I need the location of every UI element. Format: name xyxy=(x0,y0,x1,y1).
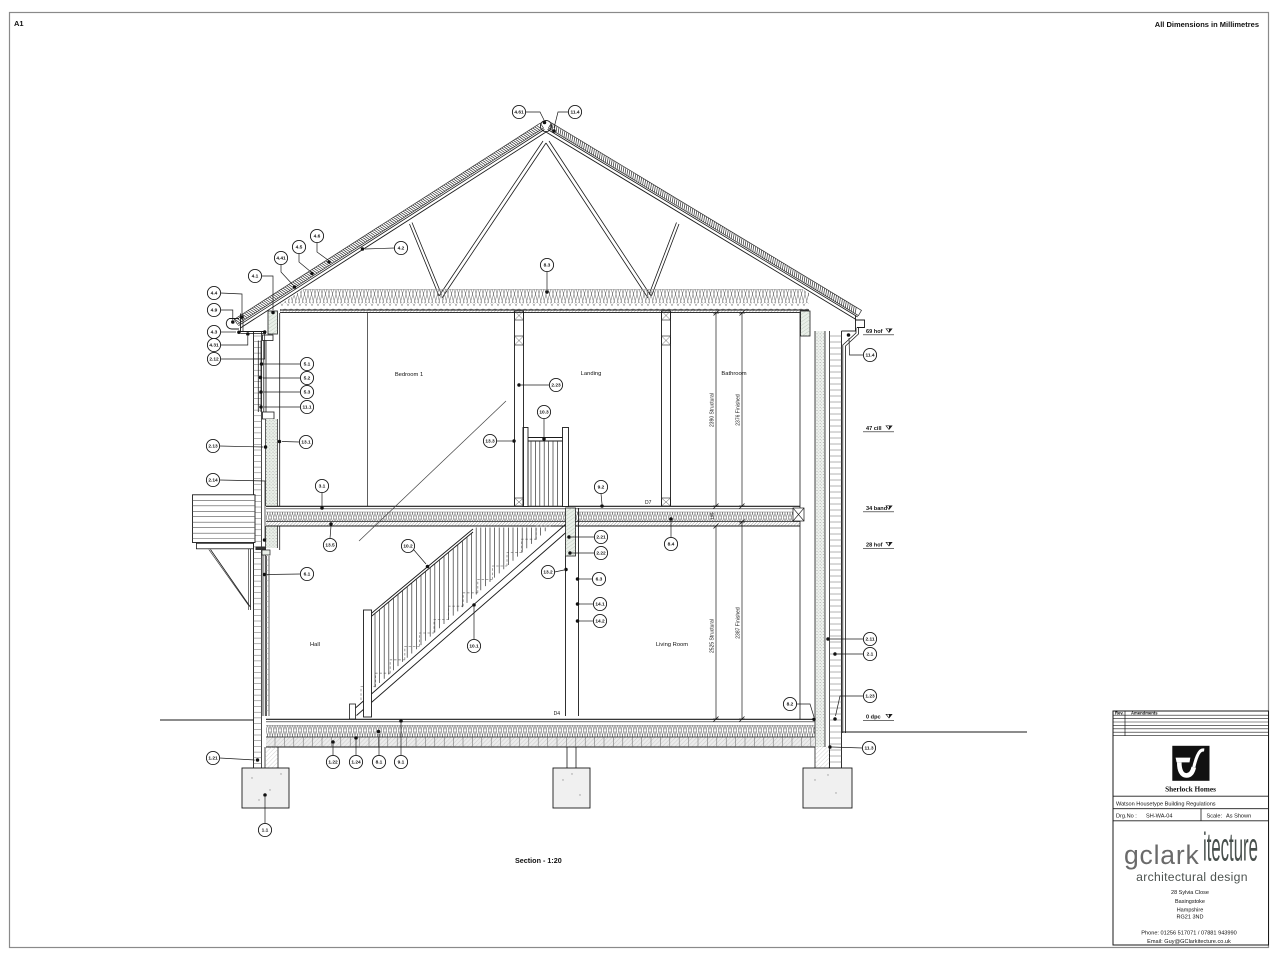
svg-text:D7: D7 xyxy=(645,500,652,506)
svg-text:Watson Housetype Building Regu: Watson Housetype Building Regulations xyxy=(1116,802,1216,808)
svg-text:All Dimensions in Millimetres: All Dimensions in Millimetres xyxy=(1155,20,1259,29)
svg-text:architectural design: architectural design xyxy=(1136,870,1248,884)
svg-text:D4: D4 xyxy=(554,711,561,717)
svg-text:4.2: 4.2 xyxy=(398,246,405,252)
svg-text:Living Room: Living Room xyxy=(656,642,688,648)
svg-text:2376 Finished: 2376 Finished xyxy=(736,394,742,426)
svg-text:2.22: 2.22 xyxy=(596,551,606,557)
svg-text:Bedroom 1: Bedroom 1 xyxy=(395,372,423,378)
svg-text:Landing: Landing xyxy=(581,371,602,377)
svg-text:4.9: 4.9 xyxy=(211,308,218,314)
svg-text:SH-WA-04: SH-WA-04 xyxy=(1146,814,1173,820)
svg-text:8.1: 8.1 xyxy=(376,760,383,766)
svg-text:4.3: 4.3 xyxy=(211,330,218,336)
svg-text:1.21: 1.21 xyxy=(208,756,218,762)
svg-text:5.3: 5.3 xyxy=(304,390,311,396)
svg-text:2.21: 2.21 xyxy=(596,535,606,541)
svg-text:2.11: 2.11 xyxy=(865,637,874,643)
svg-text:28 hof: 28 hof xyxy=(866,543,883,549)
svg-text:1.1: 1.1 xyxy=(262,828,269,834)
svg-text:1.24: 1.24 xyxy=(351,760,361,766)
svg-text:0 dpc: 0 dpc xyxy=(866,715,881,721)
svg-text:11.4: 11.4 xyxy=(865,353,874,359)
svg-text:34 band: 34 band xyxy=(866,506,888,512)
svg-text:195: 195 xyxy=(710,512,715,520)
svg-text:Hall: Hall xyxy=(310,642,320,648)
svg-text:2390 Structural: 2390 Structural xyxy=(710,393,716,427)
svg-text:9.1: 9.1 xyxy=(398,760,405,766)
svg-text:A1: A1 xyxy=(14,19,24,28)
svg-text:4.4: 4.4 xyxy=(211,291,218,297)
svg-text:10.1: 10.1 xyxy=(469,644,479,650)
svg-text:3.1: 3.1 xyxy=(319,484,326,490)
svg-text:2.23: 2.23 xyxy=(551,383,561,389)
svg-text:Drg.No :: Drg.No : xyxy=(1116,814,1137,820)
svg-text:2.14: 2.14 xyxy=(208,478,218,484)
svg-text:5.1: 5.1 xyxy=(304,362,311,368)
svg-text:6.3: 6.3 xyxy=(596,577,603,583)
svg-text:4.5: 4.5 xyxy=(296,245,303,251)
svg-text:13.3: 13.3 xyxy=(485,439,495,445)
svg-text:4.1: 4.1 xyxy=(252,274,259,280)
svg-text:14.1: 14.1 xyxy=(595,602,605,608)
svg-text:2.13: 2.13 xyxy=(208,444,218,450)
svg-text:69 hof: 69 hof xyxy=(866,329,883,335)
svg-text:13.2: 13.2 xyxy=(543,570,553,576)
svg-text:10.2: 10.2 xyxy=(403,544,413,550)
svg-text:2.12: 2.12 xyxy=(209,357,219,363)
svg-text:28 Sylvia Close: 28 Sylvia Close xyxy=(1171,890,1209,896)
svg-text:As Shown: As Shown xyxy=(1226,814,1251,820)
svg-text:1.22: 1.22 xyxy=(328,760,338,766)
svg-text:13.1: 13.1 xyxy=(301,440,311,446)
svg-text:5.2: 5.2 xyxy=(304,376,311,382)
svg-text:Phone: 01256 517071 / 07881 94: Phone: 01256 517071 / 07881 943990 xyxy=(1141,931,1237,937)
svg-text:Basingstoke: Basingstoke xyxy=(1175,899,1205,905)
svg-text:47 cill: 47 cill xyxy=(866,426,882,432)
svg-text:2525 Structural: 2525 Structural xyxy=(710,619,716,653)
svg-text:Amendments: Amendments xyxy=(1131,711,1158,716)
svg-text:4.61: 4.61 xyxy=(514,110,524,116)
svg-text:14.2: 14.2 xyxy=(595,619,605,625)
svg-text:11.4: 11.4 xyxy=(570,110,579,116)
svg-text:8.4: 8.4 xyxy=(668,542,675,548)
svg-text:1.23: 1.23 xyxy=(865,694,875,700)
svg-text:Sherlock Homes: Sherlock Homes xyxy=(1165,785,1216,794)
svg-text:gclark: gclark xyxy=(1124,840,1200,870)
svg-text:8.3: 8.3 xyxy=(544,263,551,269)
svg-text:4.31: 4.31 xyxy=(209,343,219,349)
svg-text:2.1: 2.1 xyxy=(867,652,874,658)
svg-text:4.41: 4.41 xyxy=(276,256,286,262)
svg-text:2387 Finished: 2387 Finished xyxy=(736,607,742,639)
svg-text:Scale:: Scale: xyxy=(1207,814,1223,820)
svg-text:8.2: 8.2 xyxy=(787,702,794,708)
svg-text:10.3: 10.3 xyxy=(539,410,549,416)
svg-text:4.6: 4.6 xyxy=(314,234,321,240)
svg-text:Rev.: Rev. xyxy=(1115,711,1124,716)
svg-text:RG21 3ND: RG21 3ND xyxy=(1177,915,1204,921)
svg-text:11.1: 11.1 xyxy=(302,405,311,411)
svg-text:6.1: 6.1 xyxy=(304,572,311,578)
svg-text:13.5: 13.5 xyxy=(325,543,335,549)
svg-text:9.2: 9.2 xyxy=(598,485,605,491)
svg-text:Email: Guy@GClarkitecture.co.u: Email: Guy@GClarkitecture.co.uk xyxy=(1147,939,1231,945)
svg-text:Hampshire: Hampshire xyxy=(1177,908,1204,914)
svg-text:itecture: itecture xyxy=(1203,825,1258,869)
svg-text:Section - 1:20: Section - 1:20 xyxy=(515,856,562,865)
svg-text:Bathroom: Bathroom xyxy=(721,371,746,377)
svg-text:11.3: 11.3 xyxy=(864,746,873,752)
